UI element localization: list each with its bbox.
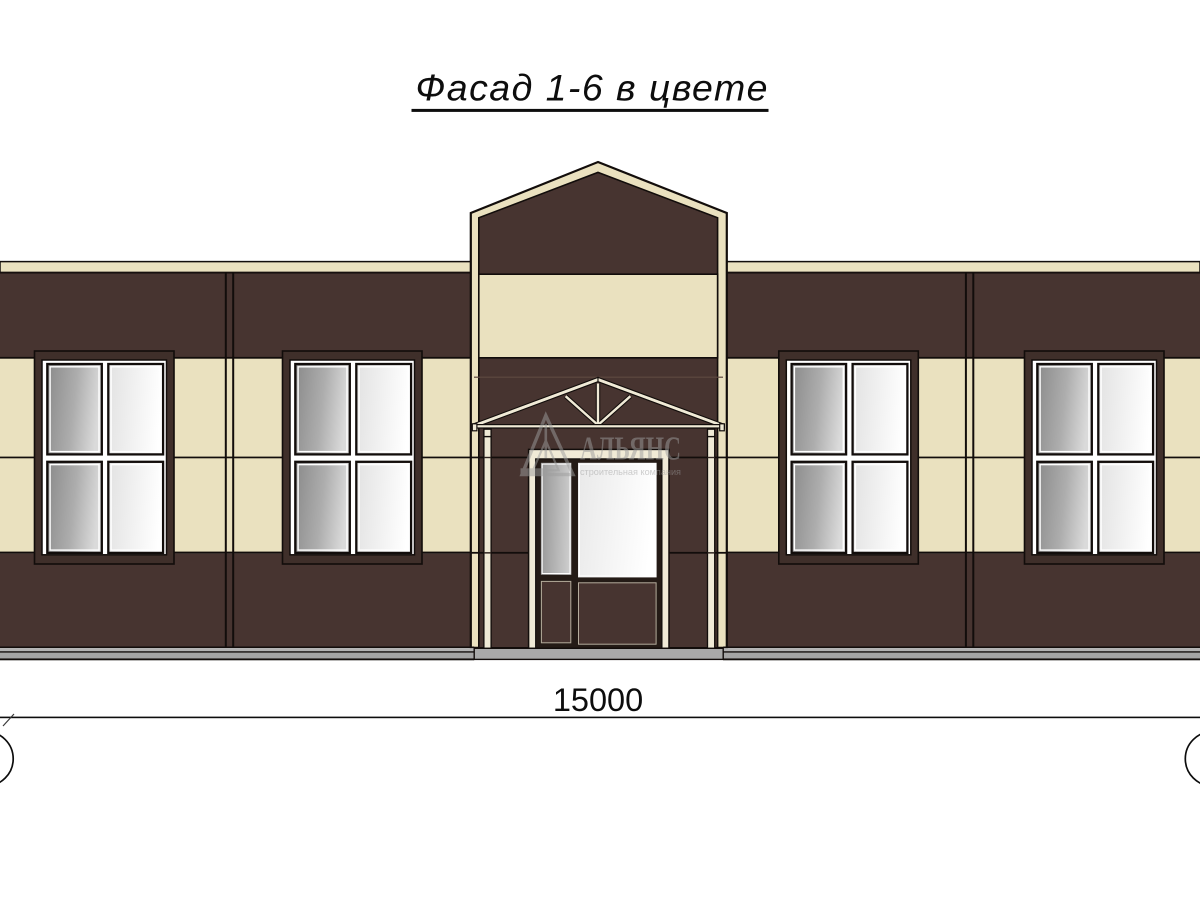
svg-text:АЛЬЯНС: АЛЬЯНС xyxy=(580,431,681,468)
svg-text:15000: 15000 xyxy=(553,682,643,718)
svg-text:Фасад 1-6 в цвете: Фасад 1-6 в цвете xyxy=(416,67,768,109)
svg-text:строительная компания: строительная компания xyxy=(580,467,681,478)
